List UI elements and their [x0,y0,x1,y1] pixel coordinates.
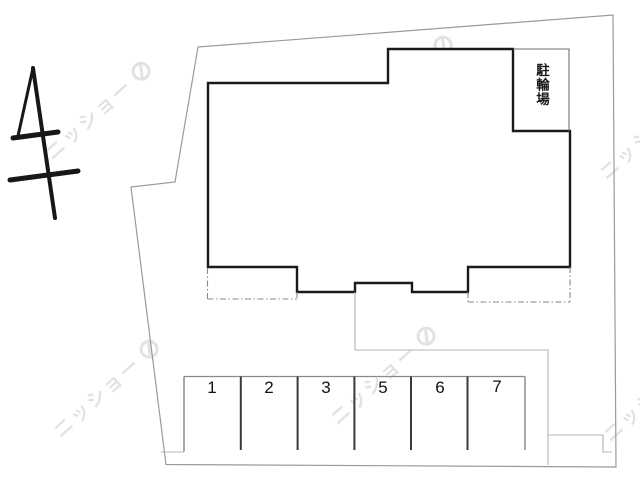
stall-number-1: 1 [207,378,216,398]
parking-stalls [184,377,525,452]
stall-number-3: 3 [321,378,330,398]
stall-number-2: 2 [264,378,273,398]
north-arrow-icon [10,68,78,218]
stall-number-6: 6 [435,378,444,398]
stall-number-7: 7 [492,377,501,397]
bicycle-area-label: 駐輪場 [531,63,551,107]
building-outline [208,49,570,292]
stall-number-5: 5 [378,378,387,398]
site-plan-page: { "document": { "type": "site-plan", "de… [0,0,640,480]
dashed-area-right [468,267,570,302]
dashed-area-left [208,268,298,299]
